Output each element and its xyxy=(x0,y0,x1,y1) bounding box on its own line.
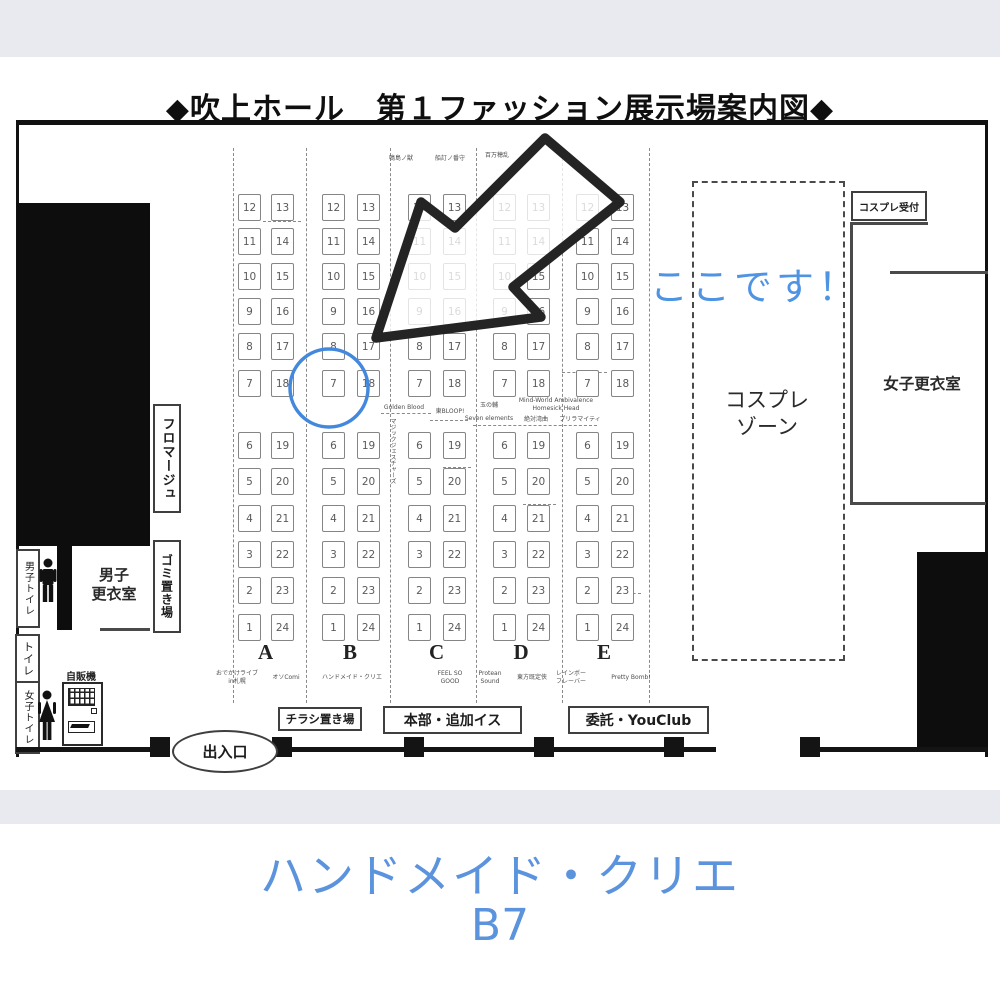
booth-B2: 2 xyxy=(322,577,345,604)
wall-table-1 xyxy=(150,737,170,757)
booth-B13: 13 xyxy=(357,194,380,221)
wall-table-6 xyxy=(800,737,820,757)
bottom-gray-band xyxy=(0,790,1000,824)
room-toilet: トイレ xyxy=(15,634,40,683)
booth-A16: 16 xyxy=(271,298,294,325)
booth-A8: 8 xyxy=(238,333,261,360)
booth-A11: 11 xyxy=(238,228,261,255)
booth-C22: 22 xyxy=(443,541,466,568)
wall-table-5 xyxy=(664,737,684,757)
booth-E16: 16 xyxy=(611,298,634,325)
hq-extra-chairs-box: 本部・追加イス xyxy=(383,706,522,734)
booth-A19: 19 xyxy=(271,432,294,459)
booth-E24: 24 xyxy=(611,614,634,641)
booth-B1: 1 xyxy=(322,614,345,641)
booth-C11: 11 xyxy=(408,228,431,255)
booth-B5: 5 xyxy=(322,468,345,495)
booth-D22: 22 xyxy=(527,541,550,568)
circle-label-mid: Mind-World Ambivalence xyxy=(496,398,616,405)
booth-C15: 15 xyxy=(443,263,466,290)
cosplay-reception-box: コスプレ受付 xyxy=(851,191,927,221)
booth-A1: 1 xyxy=(238,614,261,641)
booth-B17: 17 xyxy=(357,333,380,360)
bottom-wall-left xyxy=(16,747,150,752)
mens-changing-wall xyxy=(100,628,150,631)
booth-E14: 14 xyxy=(611,228,634,255)
booth-E21: 21 xyxy=(611,505,634,532)
cosplay-zone-label: コスプレ ゾーン xyxy=(706,387,828,442)
room-mens-changing: 男子 更衣室 xyxy=(82,566,146,604)
booth-D20: 20 xyxy=(527,468,550,495)
booth-D11: 11 xyxy=(493,228,516,255)
booth-A15: 15 xyxy=(271,263,294,290)
booth-B3: 3 xyxy=(322,541,345,568)
room-fromage: フロマージュ xyxy=(153,404,181,513)
booth-D5: 5 xyxy=(493,468,516,495)
womens-changing-wall-top xyxy=(850,222,928,225)
booth-A21: 21 xyxy=(271,505,294,532)
booth-B15: 15 xyxy=(357,263,380,290)
pillar-block xyxy=(57,545,72,630)
booth-A2: 2 xyxy=(238,577,261,604)
block-bottom-right xyxy=(917,552,988,752)
booth-A12: 12 xyxy=(238,194,261,221)
booth-A6: 6 xyxy=(238,432,261,459)
booth-C10: 10 xyxy=(408,263,431,290)
bottom-wall-right xyxy=(800,747,988,752)
booth-B14: 14 xyxy=(357,228,380,255)
womens-changing-wall-inner xyxy=(890,271,988,274)
booth-E17: 17 xyxy=(611,333,634,360)
booth-D8: 8 xyxy=(493,333,516,360)
booth-D21: 21 xyxy=(527,505,550,532)
booth-C13: 13 xyxy=(443,194,466,221)
booth-A20: 20 xyxy=(271,468,294,495)
column-letter-E: E xyxy=(597,640,611,665)
vending-machine-icon xyxy=(62,682,103,746)
booth-D2: 2 xyxy=(493,577,516,604)
booth-A22: 22 xyxy=(271,541,294,568)
booth-E3: 3 xyxy=(576,541,599,568)
booth-A18: 18 xyxy=(271,370,294,397)
booth-C3: 3 xyxy=(408,541,431,568)
booth-C9: 9 xyxy=(408,298,431,325)
aisle-dashed-line-2 xyxy=(306,148,307,703)
booth-C17: 17 xyxy=(443,333,466,360)
booth-B11: 11 xyxy=(322,228,345,255)
booth-E12: 12 xyxy=(576,194,599,221)
booth-C8: 8 xyxy=(408,333,431,360)
booth-D3: 3 xyxy=(493,541,516,568)
caption-circle-name: ハンドメイド・クリエ xyxy=(0,840,1000,906)
booth-C16: 16 xyxy=(443,298,466,325)
stage-block-left xyxy=(17,203,150,546)
booth-C1: 1 xyxy=(408,614,431,641)
booth-E8: 8 xyxy=(576,333,599,360)
booth-D14: 14 xyxy=(527,228,550,255)
booth-B18: 18 xyxy=(357,370,380,397)
booth-D17: 17 xyxy=(527,333,550,360)
booth-A23: 23 xyxy=(271,577,294,604)
room-trash-area: ゴミ置き場 xyxy=(153,540,181,633)
circle-label-mid: マジックジェスチャーズ xyxy=(385,418,395,528)
booth-E20: 20 xyxy=(611,468,634,495)
male-icon xyxy=(39,558,57,604)
booth-A4: 4 xyxy=(238,505,261,532)
booth-D7: 7 xyxy=(493,370,516,397)
booth-E6: 6 xyxy=(576,432,599,459)
consignment-box: 委託・YouClub xyxy=(568,706,709,734)
booth-C19: 19 xyxy=(443,432,466,459)
aisle-dashed-line-6 xyxy=(649,148,650,703)
booth-D4: 4 xyxy=(493,505,516,532)
booth-E15: 15 xyxy=(611,263,634,290)
booth-D12: 12 xyxy=(493,194,516,221)
booth-E10: 10 xyxy=(576,263,599,290)
entrance-label: 出入口 xyxy=(172,730,278,773)
flyer-area-box: チラシ置き場 xyxy=(278,707,362,731)
womens-changing-label: 女子更衣室 xyxy=(866,372,978,394)
booth-E1: 1 xyxy=(576,614,599,641)
booth-B23: 23 xyxy=(357,577,380,604)
booth-E9: 9 xyxy=(576,298,599,325)
booth-C2: 2 xyxy=(408,577,431,604)
booth-E19: 19 xyxy=(611,432,634,459)
booth-A14: 14 xyxy=(271,228,294,255)
here-annotation: ここです！ xyxy=(650,256,880,311)
booth-C7: 7 xyxy=(408,370,431,397)
column-letter-C: C xyxy=(429,640,444,665)
booth-B16: 16 xyxy=(357,298,380,325)
booth-C23: 23 xyxy=(443,577,466,604)
booth-D10: 10 xyxy=(493,263,516,290)
vending-machine-label: 自販機 xyxy=(61,668,101,683)
booth-C5: 5 xyxy=(408,468,431,495)
mens-changing-label-line2: 更衣室 xyxy=(91,585,136,603)
column-letter-B: B xyxy=(343,640,357,665)
booth-A9: 9 xyxy=(238,298,261,325)
dashed-divider-1 xyxy=(263,221,301,222)
booth-B7: 7 xyxy=(322,370,345,397)
vending-outlet xyxy=(68,721,95,733)
column-letter-A: A xyxy=(258,640,273,665)
bottom-wall-center xyxy=(270,747,716,752)
top-gray-band xyxy=(0,0,1000,57)
womens-changing-wall-bottom xyxy=(850,502,986,505)
booth-E22: 22 xyxy=(611,541,634,568)
booth-A3: 3 xyxy=(238,541,261,568)
booth-E7: 7 xyxy=(576,370,599,397)
circle-label-bottom: Pretty Bomb! xyxy=(571,675,691,682)
vending-buttons xyxy=(68,688,95,706)
booth-E11: 11 xyxy=(576,228,599,255)
circle-label-mid: Homesick Head xyxy=(496,406,616,413)
booth-B21: 21 xyxy=(357,505,380,532)
cosplay-zone-line2: ゾーン xyxy=(736,415,798,439)
floor-map-screenshot: ◆吹上ホール 第１ファッション展示場案内図◆ フロマージュ ゴミ置き場 男子 更… xyxy=(0,0,1000,1000)
booth-B4: 4 xyxy=(322,505,345,532)
booth-A13: 13 xyxy=(271,194,294,221)
circle-label-mid: プリラマイティ xyxy=(520,417,640,424)
booth-D18: 18 xyxy=(527,370,550,397)
booth-D9: 9 xyxy=(493,298,516,325)
booth-D19: 19 xyxy=(527,432,550,459)
booth-D1: 1 xyxy=(493,614,516,641)
booth-A24: 24 xyxy=(271,614,294,641)
room-mens-toilet: 男子トイレ xyxy=(16,549,40,628)
cosplay-zone-line1: コスプレ xyxy=(725,388,809,412)
booth-C14: 14 xyxy=(443,228,466,255)
booth-A5: 5 xyxy=(238,468,261,495)
booth-D23: 23 xyxy=(527,577,550,604)
booth-C21: 21 xyxy=(443,505,466,532)
booth-E5: 5 xyxy=(576,468,599,495)
booth-C12: 12 xyxy=(408,194,431,221)
booth-C4: 4 xyxy=(408,505,431,532)
booth-B24: 24 xyxy=(357,614,380,641)
booth-B12: 12 xyxy=(322,194,345,221)
caption-booth-number: B7 xyxy=(0,900,1000,951)
booth-E13: 13 xyxy=(611,194,634,221)
booth-D15: 15 xyxy=(527,263,550,290)
booth-E2: 2 xyxy=(576,577,599,604)
booth-B9: 9 xyxy=(322,298,345,325)
booth-C24: 24 xyxy=(443,614,466,641)
booth-A17: 17 xyxy=(271,333,294,360)
booth-E18: 18 xyxy=(611,370,634,397)
booth-E23: 23 xyxy=(611,577,634,604)
booth-A7: 7 xyxy=(238,370,261,397)
booth-D16: 16 xyxy=(527,298,550,325)
booth-B8: 8 xyxy=(322,333,345,360)
booth-C20: 20 xyxy=(443,468,466,495)
booth-B20: 20 xyxy=(357,468,380,495)
vending-coin-slot xyxy=(91,708,97,714)
wall-table-4 xyxy=(534,737,554,757)
wall-table-3 xyxy=(404,737,424,757)
dashed-divider-8 xyxy=(473,425,597,426)
booth-E4: 4 xyxy=(576,505,599,532)
column-letter-D: D xyxy=(514,640,529,665)
booth-A10: 10 xyxy=(238,263,261,290)
booth-B22: 22 xyxy=(357,541,380,568)
booth-D6: 6 xyxy=(493,432,516,459)
booth-B6: 6 xyxy=(322,432,345,459)
booth-D24: 24 xyxy=(527,614,550,641)
female-icon xyxy=(37,690,57,742)
circle-label-top: 百万穂乱 xyxy=(437,153,557,160)
mens-changing-label-line1: 男子 xyxy=(99,566,129,584)
aisle-dashed-line-1 xyxy=(233,148,234,703)
booth-C6: 6 xyxy=(408,432,431,459)
booth-C18: 18 xyxy=(443,370,466,397)
booth-D13: 13 xyxy=(527,194,550,221)
booth-B10: 10 xyxy=(322,263,345,290)
booth-B19: 19 xyxy=(357,432,380,459)
